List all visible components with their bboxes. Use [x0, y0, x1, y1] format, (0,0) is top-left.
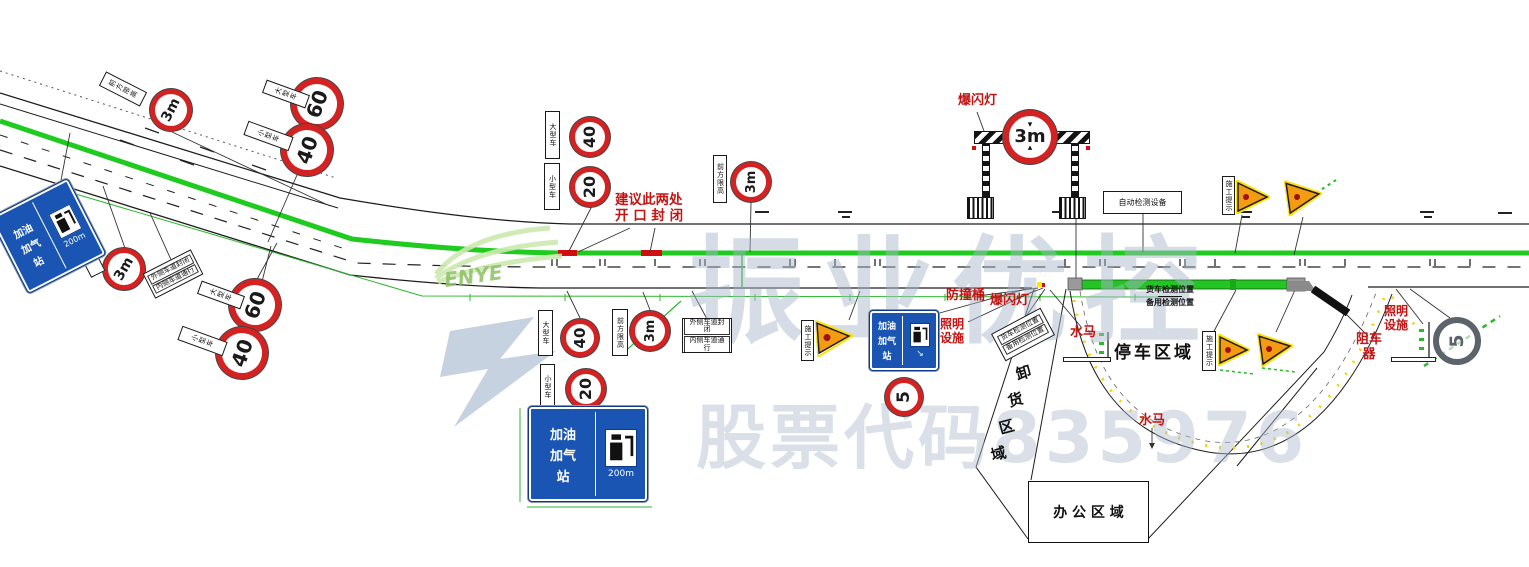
speed-limit-20-sign: 20	[566, 369, 606, 409]
gas-station-guide-sign: 加油 加气 站 ↘	[869, 310, 939, 371]
fuel-pump-icon	[910, 323, 930, 347]
height-limit-sign: 3m	[630, 311, 670, 351]
road-linework	[0, 0, 1529, 567]
plate-line: 内侧车道通行	[684, 336, 730, 353]
height-limit-value: 3m	[159, 96, 183, 124]
aux-plate: 前方限高	[713, 155, 727, 203]
warning-triangle-icon	[1218, 334, 1250, 366]
lighting-label: 照明设施	[1384, 305, 1408, 333]
aux-plate: 大型车	[538, 310, 553, 356]
speed-limit-40-sign: 40	[570, 117, 610, 157]
auto-detect-sign: 自动检测设备	[1103, 191, 1182, 214]
lighting-line: 设施	[940, 331, 964, 345]
lighting-line: 照明	[940, 317, 964, 331]
speed-value: 40	[293, 133, 321, 166]
guide-line: 加油	[878, 319, 896, 332]
speed-limit-40-sign: 40	[561, 319, 599, 357]
guide-line: 加气	[550, 445, 576, 464]
speed-value: 60	[303, 87, 331, 120]
vehicle-stopper-label: 阻车器	[1352, 333, 1386, 363]
guide-line: 加气	[878, 334, 896, 347]
strobe-light-label: 爆闪灯	[958, 94, 997, 109]
guide-line: 站	[30, 251, 46, 269]
aux-plate: 前方限高	[612, 309, 628, 356]
detect-position-note: 货车检测位置 备用检测位置	[1140, 285, 1200, 307]
aux-plate: 小型车	[540, 364, 555, 410]
closure-suggestion-note: 建议此两处开 口 封 闭	[615, 193, 683, 224]
gantry-strobe-dot-left	[972, 146, 976, 150]
gantry-base-left	[967, 197, 994, 219]
guide-line: 站	[556, 466, 569, 485]
speed-value: 20	[578, 378, 594, 400]
speed-value: 40	[573, 328, 588, 349]
speed-value: 40	[582, 126, 598, 148]
speed-limit-5-sign-faded: 5	[1433, 317, 1481, 365]
guide-sign-text: 加油 加气 站	[875, 316, 899, 365]
guide-line: 站	[882, 349, 891, 362]
parking-area-label: 停车区域	[1114, 338, 1194, 363]
warning-triangle-icon	[1257, 329, 1295, 367]
height-limit-value: 3m	[644, 320, 657, 343]
lighting-line: 照明	[1384, 304, 1408, 318]
height-limit-value: 3m	[745, 171, 758, 194]
aux-plate: 小型车	[544, 163, 560, 210]
water-barrier-label: 水马	[1070, 326, 1096, 341]
strobe-light-label: 爆闪灯	[990, 294, 1029, 309]
speed-value: 5	[1448, 334, 1467, 347]
guide-sign-text: 加油 加气 站	[534, 412, 592, 496]
crash-barrel-label: 防撞桶	[946, 289, 985, 304]
note-line: 开 口 封 闭	[615, 208, 683, 224]
gantry-post-right	[1071, 144, 1079, 197]
gantry-base-right	[1059, 197, 1086, 219]
lighting-base	[1391, 357, 1436, 362]
plate-line: 外侧车道封闭	[684, 318, 730, 335]
distance-label: 200m	[608, 469, 634, 479]
height-limit-value: 3m	[112, 255, 136, 283]
note-line: 货车检测位置	[1146, 285, 1194, 294]
aux-plate: 施工提示	[1222, 176, 1235, 215]
note-line: 建议此两处	[615, 192, 683, 208]
clearance-arrow-up-icon: ▴	[1028, 146, 1033, 151]
lane-closure-plate: 外侧车道封闭 内侧车道通行	[682, 318, 732, 353]
aux-plate: 施工提示	[1202, 331, 1216, 371]
speed-value: 60	[241, 288, 269, 321]
note-line: 备用检测位置	[1146, 298, 1194, 307]
aux-plate: 施工提示	[801, 320, 814, 361]
height-limit-sign-gantry: ▾3m▴	[1003, 110, 1057, 164]
strike-line	[1158, 296, 1182, 297]
water-barrier-label: 水马	[1139, 414, 1165, 429]
speed-limit-20-sign: 20	[570, 167, 610, 207]
gantry-strobe-dot-right	[1086, 146, 1090, 150]
stopper-line: 阻车	[1356, 332, 1382, 347]
arrow-down-right-icon: ↘	[916, 349, 924, 359]
warning-triangle-icon	[1284, 176, 1325, 217]
fuel-pump-icon	[605, 429, 637, 467]
stopper-line: 器	[1362, 347, 1375, 362]
gantry-post-left	[982, 144, 990, 197]
guide-line: 加油	[550, 424, 576, 443]
speed-value: 5	[896, 391, 913, 403]
warning-triangle-icon	[815, 318, 854, 357]
speed-value: 40	[228, 336, 256, 369]
aux-plate: 大型车	[545, 111, 560, 159]
speed-limit-5-sign: 5	[885, 378, 923, 416]
water-barrier-base	[1063, 357, 1111, 362]
speed-value: 20	[582, 176, 598, 198]
office-area-box: 办 公 区 域	[1028, 481, 1149, 543]
warning-triangle-icon	[1236, 180, 1270, 214]
height-limit-sign: 3m	[731, 162, 771, 202]
traffic-plan-canvas: ENYE 振业优控 股票代码835976 ▾3m▴ 3m 60 40 3m 60…	[0, 0, 1529, 567]
lighting-line: 设施	[1384, 318, 1408, 332]
gas-station-guide-sign: 加油 加气 站 200m	[528, 406, 648, 502]
lighting-label: 照明设施	[940, 318, 964, 346]
